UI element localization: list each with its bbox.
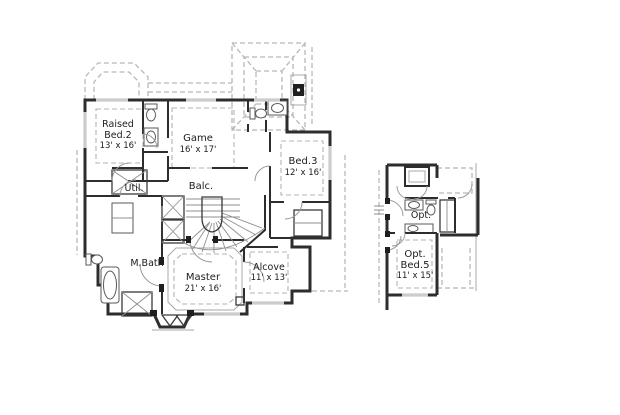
room-label-raised-bed2-line1: Raised [102,119,134,130]
roof-band [148,83,232,92]
room-label-alcove: Alcove [253,262,285,273]
room-label-master: Master [186,272,221,283]
opt-closet [440,200,455,232]
fragment-closet-inner [409,171,425,182]
jamb [213,236,218,243]
floor-plan-page: Raised Bed.2 13' x 16' Game 16' x 17' Be… [0,0,620,415]
bay-roof-outline [85,63,148,100]
room-label-raised-bed2-line2: Bed.2 [104,130,131,141]
toilet-bowl [256,109,267,118]
jamb [385,231,390,237]
jamb [385,214,390,220]
shower-x [122,292,152,316]
floor-plan-drawing: Raised Bed.2 13' x 16' Game 16' x 17' Be… [0,0,620,415]
toilet-tank [250,108,255,119]
room-label-opt-bed5-line2: Bed.5 [401,260,430,271]
vanity-bowl [408,226,418,232]
jamb [187,310,194,316]
toilet-bowl [92,255,103,264]
room-label-game: Game [183,133,213,144]
stair-treads [186,199,240,217]
room-label-opt-bath: Opt. [411,210,431,221]
jamb [385,247,390,253]
toilet-tank [86,254,91,265]
sink-bowl [272,104,284,113]
toilet-tank [426,200,436,204]
jamb [385,198,390,204]
room-dims-opt-bed5: 11' x 15' [397,271,434,281]
chimney-flue-dot [297,88,300,91]
room-label-opt-bed5-line1: Opt. [404,249,425,260]
hall-closet [294,210,322,236]
room-label-util: Util. [125,183,144,194]
shower [122,292,152,316]
sink-bowl [409,202,420,209]
toilet-tank [145,104,157,109]
room-label-balcony: Balc. [189,181,213,192]
room-dims-master: 21' x 16' [185,284,222,294]
tub [104,271,117,299]
jamb [150,310,157,316]
jamb [186,236,191,243]
room-label-master-bath: M.Bath [130,258,163,269]
room-dims-raised-bed2: 13' x 16' [100,141,137,151]
stair-closets [162,196,184,243]
room-dims-alcove: 11' x 13' [251,273,288,283]
staircase [184,197,265,253]
toilet-bowl [147,109,156,121]
jamb [159,284,164,292]
room-label-bed3: Bed.3 [289,156,318,167]
room-dims-game: 16' x 17' [180,145,217,155]
room-dims-bed3: 12' x 16' [285,168,322,178]
